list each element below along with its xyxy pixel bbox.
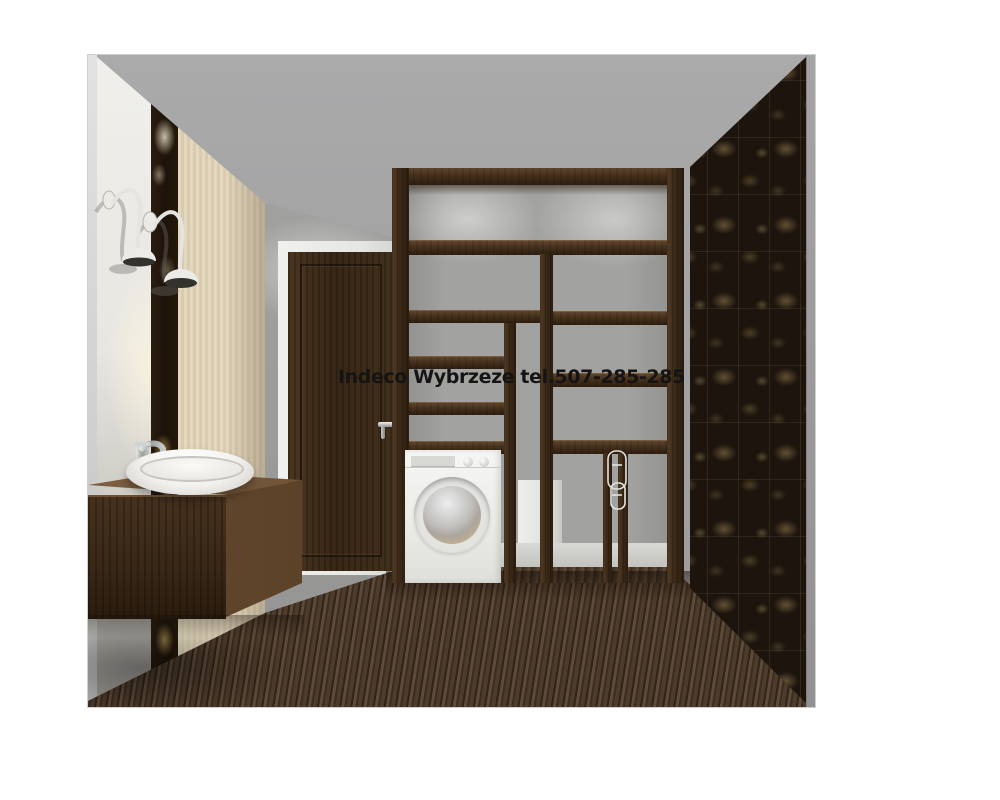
right-wall-edge: [806, 55, 815, 707]
shelf: [409, 310, 540, 323]
slim-compartment-divider: [618, 453, 628, 583]
floating-vanity-cabinet: [88, 495, 226, 619]
vanity-shadow: [88, 615, 304, 637]
wardrobe-top-shade: [409, 185, 667, 195]
wardrobe-narrow-divider: [504, 310, 516, 583]
shelf: [553, 311, 667, 325]
washer-panel-line: [405, 467, 501, 468]
washer-detergent-drawer: [411, 456, 455, 467]
washing-machine: [405, 450, 501, 583]
washer-door-glass: [423, 486, 481, 544]
shelf: [409, 402, 504, 415]
sink-basin: [140, 456, 244, 482]
wardrobe-top-rail: [392, 168, 684, 185]
interior-door: [288, 252, 392, 571]
watermark-text: Indeco Wybrzeze tel.507-285-285: [338, 366, 685, 388]
door-handle-hook: [381, 426, 385, 439]
washer-knob: [479, 457, 489, 467]
shelf: [409, 240, 667, 255]
slim-compartment-divider: [603, 453, 612, 583]
door-panel: [300, 264, 382, 557]
washer-door: [414, 477, 490, 553]
visualization-canvas: Indeco Wybrzeze tel.507-285-285: [0, 0, 1000, 800]
washer-knob: [463, 457, 473, 467]
room-render: Indeco Wybrzeze tel.507-285-285: [88, 55, 815, 707]
wardrobe-center-divider: [540, 254, 553, 583]
shelf: [553, 440, 667, 454]
